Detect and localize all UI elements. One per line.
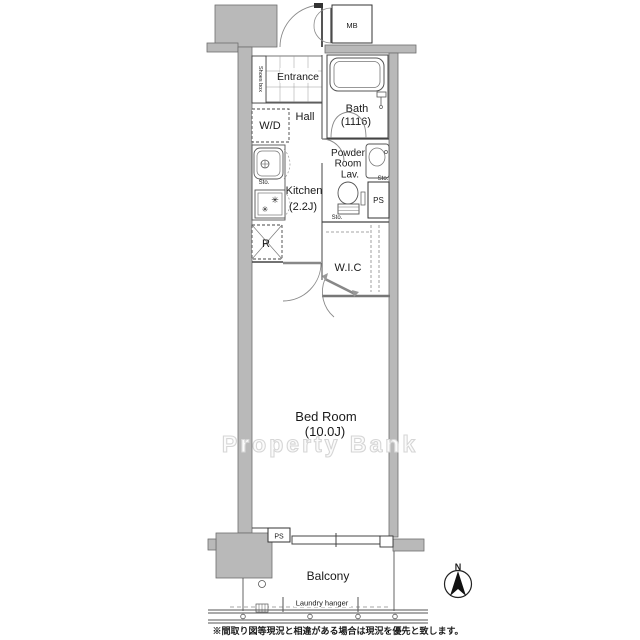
burner-icon: ✳: [271, 195, 279, 205]
shoes-box-label: Shoes box: [257, 66, 263, 92]
disclaimer-note: ※間取り図等現況と相違がある場合は現況を優先と致します。: [212, 625, 463, 636]
bottom-left-stub: [208, 539, 216, 550]
shower-fixture: [377, 92, 386, 97]
bath-room: Bath (1116): [322, 55, 388, 138]
watermark: Property Bank: [222, 431, 418, 457]
wic-door-arc: [322, 279, 334, 317]
wic-closet: W.I.C: [322, 222, 390, 317]
top-band-wall: [325, 45, 416, 53]
walls: [207, 5, 424, 578]
floorplan-drawing: Shoes box Entrance MB Bath (1116) Hall W…: [0, 0, 640, 640]
entrance-label: Entrance: [277, 71, 319, 83]
kitchen-label: Kitchen: [286, 185, 323, 197]
bathtub: [330, 58, 384, 91]
bath-label: Bath: [346, 103, 369, 115]
balcony-drain: [259, 581, 266, 588]
mb-label: MB: [346, 21, 357, 30]
railing-posts: [241, 614, 398, 619]
compass: N: [445, 562, 472, 598]
kitchen-size-label: (2.2J): [289, 201, 317, 213]
powder-label-1: Powder: [331, 148, 366, 159]
bedroom-door-arc: [283, 263, 321, 301]
wic-shelves: [326, 225, 379, 292]
laundry-hanger-label: Laundry hanger: [296, 599, 349, 608]
kitchen-area: Sto. ✳ ✳ Kitchen (2.2J) R: [252, 145, 322, 259]
ps-middle-label: PS: [373, 196, 384, 205]
wd-label: W/D: [259, 120, 280, 132]
right-wall: [389, 53, 398, 537]
wic-door-hinges: [322, 273, 359, 297]
wic-door-leaf: [325, 279, 355, 294]
entrance-door-arc: [280, 5, 322, 47]
top-left-pillar: [215, 5, 277, 47]
floorplan-canvas: Shoes box Entrance MB Bath (1116) Hall W…: [0, 0, 640, 640]
bottom-left-pillar: [216, 533, 272, 578]
powder-label-3: Lav.: [341, 170, 359, 181]
bath-size-label: (1116): [341, 116, 371, 128]
ps-bottom-label: PS: [274, 534, 284, 541]
lav-storage-label: Sto.: [378, 176, 389, 182]
bedroom-door: [252, 262, 321, 301]
wic-label: W.I.C: [335, 262, 362, 274]
burner-icon: ✳: [262, 205, 269, 214]
stove: [255, 190, 285, 218]
left-wall: [238, 47, 252, 533]
refrigerator-label: R: [262, 238, 270, 250]
powder-label-2: Room: [335, 159, 362, 170]
toilet: [338, 182, 358, 204]
top-left-stub: [207, 43, 238, 52]
door-closer: [314, 3, 323, 8]
bedroom-label: Bed Room: [295, 409, 356, 424]
bottom-right-band: [393, 539, 424, 551]
toilet-storage-label: Sto.: [332, 215, 343, 221]
shutter-box: [380, 536, 393, 547]
kitchen-storage-label: Sto.: [259, 180, 270, 186]
hall-label: Hall: [296, 111, 315, 123]
bottom-wall: PS: [252, 528, 393, 547]
hall-area: Hall W/D: [252, 109, 314, 142]
balcony-label: Balcony: [307, 569, 350, 583]
